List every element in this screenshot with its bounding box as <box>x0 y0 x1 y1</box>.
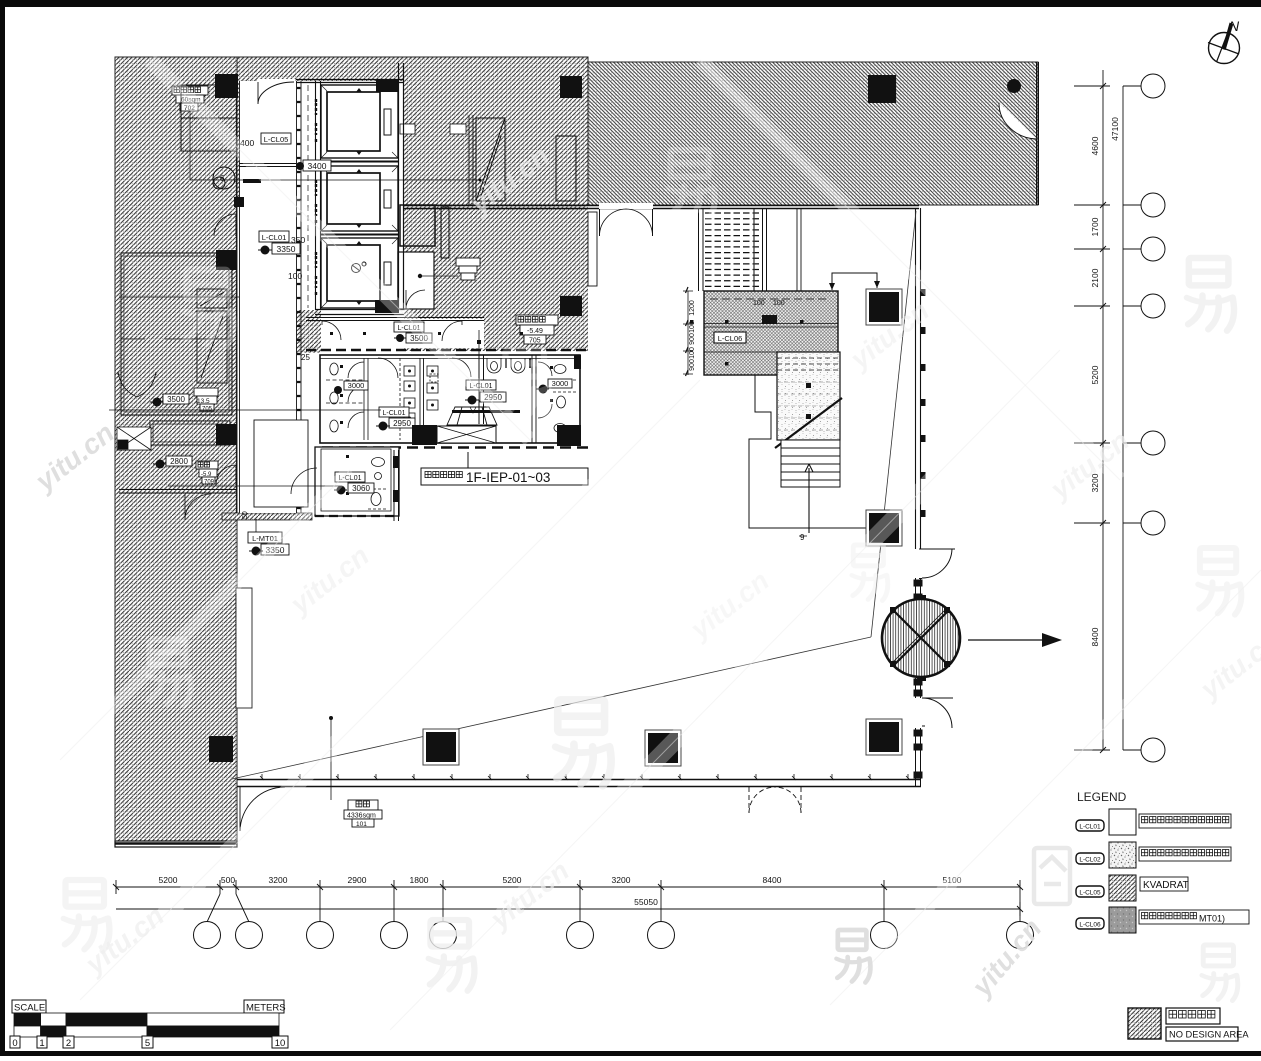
svg-text:100: 100 <box>689 347 696 359</box>
svg-text:-5.49: -5.49 <box>527 328 543 335</box>
svg-text:900: 900 <box>689 359 696 371</box>
svg-text:47100: 47100 <box>1110 117 1120 141</box>
svg-text:500: 500 <box>221 875 235 885</box>
svg-text:6: 6 <box>220 174 225 183</box>
svg-text:100: 100 <box>288 271 302 281</box>
svg-text:3400: 3400 <box>308 161 327 171</box>
svg-text:2: 2 <box>66 1038 71 1049</box>
svg-text:2950: 2950 <box>393 419 411 428</box>
svg-text:705: 705 <box>529 338 541 345</box>
svg-text:2100: 2100 <box>1090 268 1100 287</box>
svg-text:NO DESIGN AREA: NO DESIGN AREA <box>1169 1030 1249 1040</box>
svg-text:2900: 2900 <box>348 875 367 885</box>
svg-text:55050: 55050 <box>634 897 658 907</box>
svg-text:LEGEND: LEGEND <box>1077 790 1127 804</box>
svg-text:8400: 8400 <box>763 875 782 885</box>
svg-text:101: 101 <box>356 821 367 828</box>
svg-text:3500: 3500 <box>167 395 185 404</box>
svg-text:1: 1 <box>39 1038 44 1049</box>
svg-text:N: N <box>1229 18 1240 34</box>
svg-text:10: 10 <box>275 1038 286 1049</box>
svg-text:900: 900 <box>689 333 696 345</box>
svg-text:5200: 5200 <box>1090 365 1100 384</box>
svg-text:L-CL05: L-CL05 <box>264 135 289 144</box>
svg-text:METERS: METERS <box>246 1003 286 1014</box>
svg-text:709: 709 <box>204 480 215 486</box>
svg-text:1F-IEP-01~03: 1F-IEP-01~03 <box>466 470 550 485</box>
svg-text:L-CL06: L-CL06 <box>718 334 743 343</box>
svg-text:L-CL02: L-CL02 <box>1079 857 1101 864</box>
svg-text:25: 25 <box>301 353 310 362</box>
svg-text:8400: 8400 <box>1090 627 1100 646</box>
svg-text:4600: 4600 <box>1090 136 1100 155</box>
svg-text:50: 50 <box>242 511 249 519</box>
svg-text:13.5: 13.5 <box>197 398 210 405</box>
svg-text:100: 100 <box>689 321 696 333</box>
svg-text:-5.9: -5.9 <box>201 472 212 478</box>
svg-text:5: 5 <box>145 1038 150 1049</box>
svg-text:L-CL01: L-CL01 <box>383 410 406 417</box>
svg-text:3200: 3200 <box>269 875 288 885</box>
svg-text:3060: 3060 <box>352 484 370 493</box>
svg-text:100: 100 <box>753 300 765 307</box>
svg-text:L-CL01: L-CL01 <box>262 233 287 242</box>
svg-text:1200: 1200 <box>689 300 696 316</box>
svg-text:L-CL05: L-CL05 <box>1079 890 1101 897</box>
svg-text:3200: 3200 <box>612 875 631 885</box>
svg-text:3000: 3000 <box>552 379 569 388</box>
svg-text:3350: 3350 <box>277 244 296 254</box>
svg-text:1800: 1800 <box>410 875 429 885</box>
svg-text:100: 100 <box>773 300 785 307</box>
svg-text:3000: 3000 <box>348 381 365 390</box>
svg-text:KVADRAT: KVADRAT <box>1143 880 1189 891</box>
svg-text:4336sqm: 4336sqm <box>347 813 376 820</box>
svg-text:705: 705 <box>202 407 213 413</box>
svg-text:0: 0 <box>12 1038 17 1049</box>
svg-text:L-CL06: L-CL06 <box>1079 922 1101 929</box>
svg-text:SCALE: SCALE <box>14 1003 45 1014</box>
svg-text:9: 9 <box>800 533 805 542</box>
svg-text:L-CL01: L-CL01 <box>1079 824 1101 831</box>
svg-text:2800: 2800 <box>170 457 188 466</box>
svg-text:350: 350 <box>291 235 305 245</box>
svg-text:MT01): MT01) <box>1199 914 1225 924</box>
svg-text:1700: 1700 <box>1090 217 1100 236</box>
svg-text:5200: 5200 <box>159 875 178 885</box>
